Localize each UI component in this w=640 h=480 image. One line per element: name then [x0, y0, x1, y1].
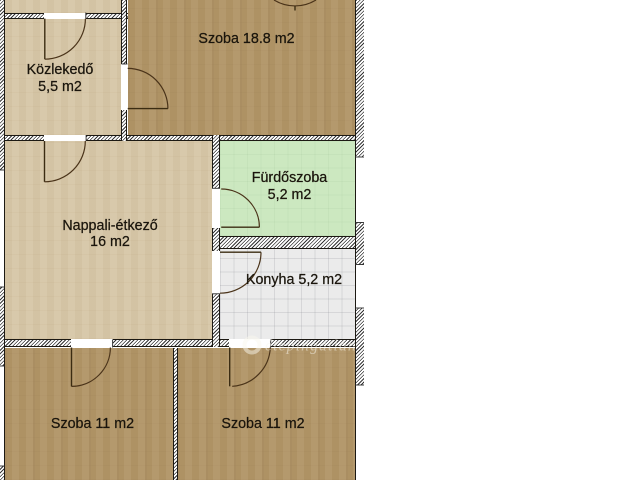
svg-text:étepingatlan: étepingatlan	[265, 338, 357, 355]
